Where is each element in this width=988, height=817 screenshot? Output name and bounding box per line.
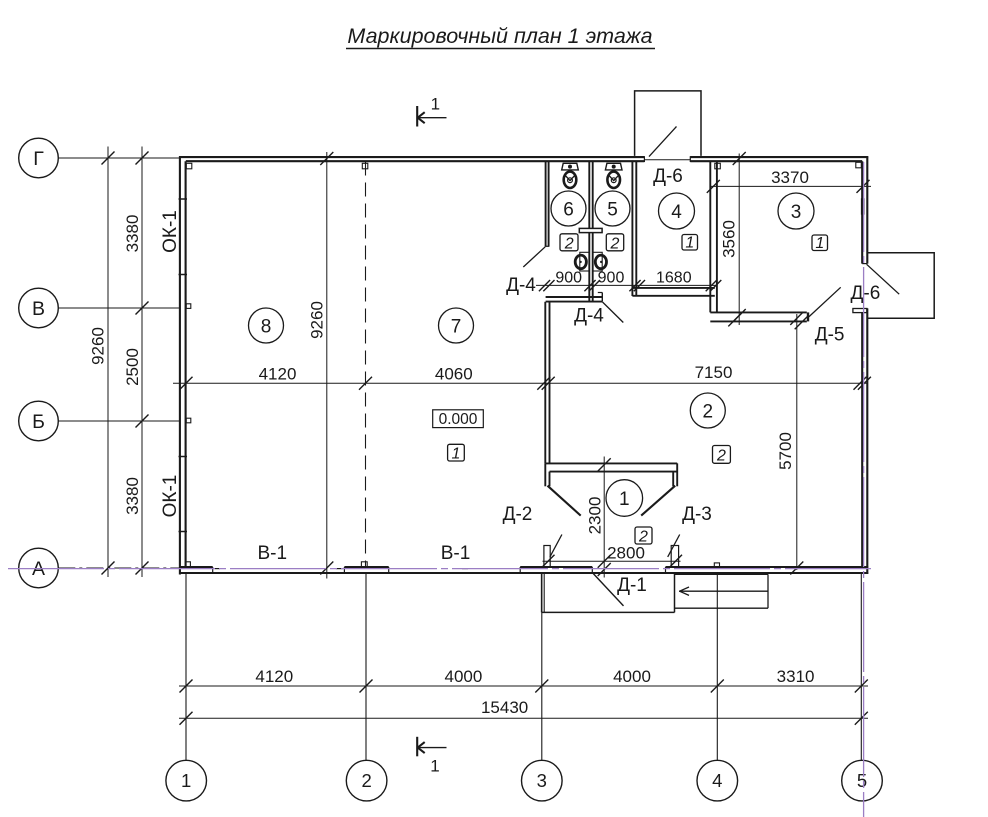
svg-text:Д-4: Д-4 xyxy=(574,306,604,327)
svg-text:2: 2 xyxy=(361,770,371,791)
svg-text:1680: 1680 xyxy=(656,270,692,287)
svg-text:В-1: В-1 xyxy=(258,543,288,564)
svg-text:Б: Б xyxy=(32,411,45,433)
svg-text:В-1: В-1 xyxy=(441,543,471,564)
svg-text:В: В xyxy=(32,298,45,320)
svg-text:4: 4 xyxy=(671,202,682,223)
svg-text:2: 2 xyxy=(638,528,648,545)
svg-text:2300: 2300 xyxy=(586,497,605,535)
svg-text:Д-6: Д-6 xyxy=(851,283,881,304)
svg-text:3560: 3560 xyxy=(720,220,739,258)
svg-text:4000: 4000 xyxy=(613,667,651,686)
svg-text:5: 5 xyxy=(857,770,867,791)
svg-text:8: 8 xyxy=(261,316,272,337)
svg-text:Д-6: Д-6 xyxy=(653,166,683,187)
svg-text:4060: 4060 xyxy=(435,365,473,384)
svg-text:Д-2: Д-2 xyxy=(503,504,533,525)
svg-text:4120: 4120 xyxy=(259,365,297,384)
svg-text:2800: 2800 xyxy=(607,544,645,563)
svg-text:2: 2 xyxy=(703,401,714,422)
svg-text:3370: 3370 xyxy=(771,168,809,187)
svg-text:9260: 9260 xyxy=(308,301,327,339)
svg-text:7: 7 xyxy=(451,316,462,337)
svg-text:1: 1 xyxy=(685,235,694,252)
svg-text:1: 1 xyxy=(181,770,191,791)
svg-text:1: 1 xyxy=(619,489,630,510)
svg-text:3: 3 xyxy=(791,202,802,223)
svg-text:3380: 3380 xyxy=(123,477,142,515)
svg-text:3: 3 xyxy=(537,770,547,791)
svg-text:ОК-1: ОК-1 xyxy=(160,210,181,253)
svg-text:Г: Г xyxy=(33,148,44,170)
svg-text:6: 6 xyxy=(563,199,574,220)
svg-text:0.000: 0.000 xyxy=(439,411,478,428)
svg-text:7150: 7150 xyxy=(695,363,733,382)
svg-text:1: 1 xyxy=(431,94,440,113)
svg-text:5: 5 xyxy=(607,199,618,220)
svg-text:900: 900 xyxy=(555,270,582,287)
svg-text:Д-3: Д-3 xyxy=(682,504,712,525)
svg-text:900: 900 xyxy=(598,270,625,287)
svg-text:3380: 3380 xyxy=(123,215,142,253)
svg-text:Д-4: Д-4 xyxy=(506,275,536,296)
svg-text:1: 1 xyxy=(452,445,461,462)
svg-text:Д-1: Д-1 xyxy=(617,575,647,596)
svg-text:Д-5: Д-5 xyxy=(815,325,845,346)
svg-text:2: 2 xyxy=(564,235,574,252)
svg-text:9260: 9260 xyxy=(89,327,108,365)
svg-text:15430: 15430 xyxy=(481,698,528,717)
svg-text:5700: 5700 xyxy=(776,432,795,470)
svg-text:4120: 4120 xyxy=(255,667,293,686)
svg-text:Маркировочный план 1 этажа: Маркировочный план 1 этажа xyxy=(347,24,652,48)
svg-text:3310: 3310 xyxy=(777,667,815,686)
svg-text:4000: 4000 xyxy=(444,667,482,686)
svg-text:2: 2 xyxy=(716,448,726,465)
svg-text:1: 1 xyxy=(815,235,824,252)
svg-text:1: 1 xyxy=(430,757,439,776)
svg-text:ОК-1: ОК-1 xyxy=(160,475,181,518)
svg-text:2500: 2500 xyxy=(123,348,142,386)
svg-text:2: 2 xyxy=(610,235,620,252)
svg-text:4: 4 xyxy=(712,770,722,791)
